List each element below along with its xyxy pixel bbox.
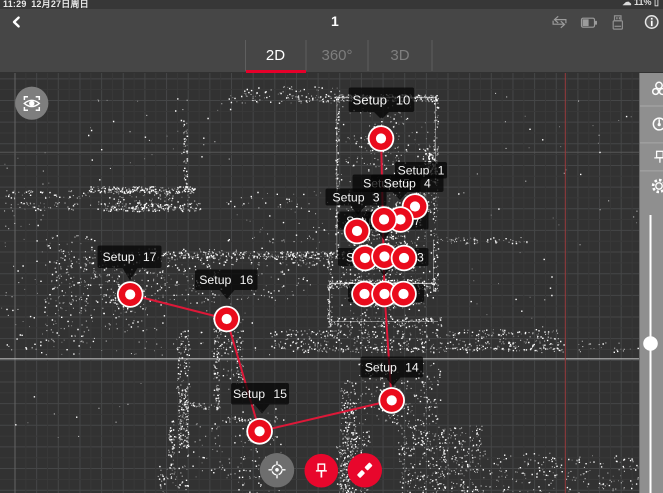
svg-text:Setup 15: Setup 15 — [233, 387, 287, 401]
svg-text:Setup 3: Setup 3 — [332, 190, 379, 204]
svg-text:Setup 17: Setup 17 — [102, 250, 156, 264]
svg-text:Setup 4: Setup 4 — [384, 177, 431, 191]
svg-text:Setup 14: Setup 14 — [365, 360, 419, 374]
svg-text:Setup 16: Setup 16 — [199, 273, 253, 287]
svg-text:Setup 10: Setup 10 — [352, 93, 410, 108]
